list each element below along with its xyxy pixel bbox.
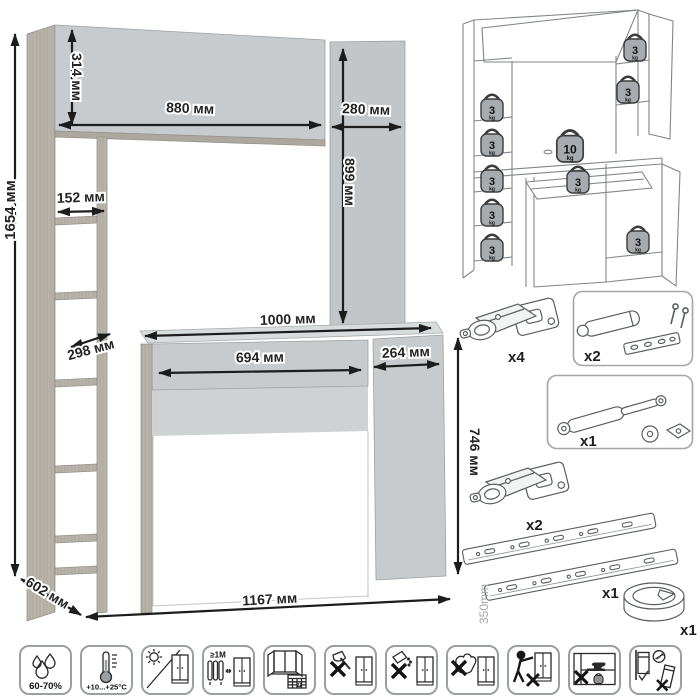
weight-unit: kg xyxy=(489,221,495,227)
dim-shelf-width: 152 мм xyxy=(57,188,105,206)
calendar-day-label: 21 xyxy=(296,682,302,687)
weight-unit: kg xyxy=(566,156,573,162)
radiator-icon xyxy=(208,661,223,685)
care-icon-wall-anchoring xyxy=(629,645,682,695)
weight-unit: kg xyxy=(632,56,638,62)
sun-icon xyxy=(146,649,162,665)
furniture-dimension-sheet: 1654 мм 314 мм 880 мм 280 мм 899 мм 152 … xyxy=(0,0,700,700)
hardware-gaslift-x1: x1 xyxy=(546,374,696,456)
wardrobe-icon xyxy=(172,655,188,683)
care-icon-no-direct-sunlight xyxy=(141,645,194,695)
weight-value: 10 xyxy=(563,143,577,157)
dim-side-column-width: 280 мм xyxy=(342,100,390,118)
x-mark-icon xyxy=(452,661,466,675)
care-icon-ventilation: 21 xyxy=(263,645,316,695)
care-icon-no-wet-cleaning xyxy=(446,645,499,695)
thermometer-icon xyxy=(100,652,117,683)
grommet-qty: x1 xyxy=(680,622,697,639)
wardrobe-icon xyxy=(417,657,433,685)
weight-unit: kg xyxy=(635,248,641,254)
dim-drawer-width: 694 мм xyxy=(236,349,284,366)
x-mark-icon xyxy=(331,662,345,676)
care-icon-humidity: 60-70% xyxy=(19,645,72,695)
dim-side-column-height: 899 мм xyxy=(342,158,358,206)
dim-desktop-width: 1000 мм xyxy=(260,310,316,328)
cable-grommet-icon xyxy=(624,583,684,621)
care-icon-row: 60-70% +10...+25°С xyxy=(0,645,700,695)
care-icon-no-dragging xyxy=(507,645,560,695)
hinge-qty: x4 xyxy=(508,349,525,366)
anchored-cabinet-icon xyxy=(636,650,649,680)
care-icon-no-heavy-load xyxy=(568,645,621,695)
wardrobe-icon xyxy=(234,658,250,686)
slide-length-label: 350mm xyxy=(477,584,491,624)
care-icon-heat-distance: ≥1М xyxy=(202,645,255,695)
weight-unit: kg xyxy=(575,188,581,194)
care-icon-no-sharp-tools xyxy=(324,645,377,695)
double-arrow-icon xyxy=(226,669,231,673)
weight-unit: kg xyxy=(625,98,631,104)
distance-label: ≥1М xyxy=(210,651,226,660)
x-mark-icon xyxy=(392,664,406,678)
load-weights: 3kg 3kg 3kg 3kg 3kg 3kg 3kg 10kg 3kg 3kg xyxy=(481,35,649,262)
screw-detail-icon xyxy=(653,651,665,663)
weight-unit: kg xyxy=(489,116,495,122)
hardware-damper-x2: x2 xyxy=(572,290,696,370)
calendar-icon: 21 xyxy=(288,675,306,688)
dim-hutch-width: 880 мм xyxy=(166,99,214,117)
open-window-icon xyxy=(268,651,302,676)
main-dimension-drawing: 1654 мм 314 мм 880 мм 280 мм 899 мм 152 … xyxy=(0,0,480,660)
care-icon-no-abrasives xyxy=(385,645,438,695)
weight-unit: kg xyxy=(489,151,495,157)
hardware-grommet-x1: x1 xyxy=(612,575,700,641)
dim-door-width: 264 мм xyxy=(382,343,430,361)
dim-hutch-height: 314 мм xyxy=(69,53,85,101)
weight-unit: kg xyxy=(489,256,495,262)
dim-total-height: 1654 мм xyxy=(2,180,19,240)
damper-qty: x2 xyxy=(584,348,601,365)
wardrobe-icon xyxy=(478,657,494,685)
powder-box-icon xyxy=(393,652,411,666)
weight-unit: kg xyxy=(489,187,495,193)
water-drops-icon xyxy=(33,654,55,678)
hardware-hinge-x4: x4 xyxy=(460,290,575,368)
wardrobe-icon xyxy=(356,657,372,685)
hinge-icon xyxy=(459,297,560,344)
dim-total-width: 1167 мм xyxy=(242,590,298,609)
temperature-label: +10...+25°С xyxy=(86,683,127,692)
care-icon-temperature: +10...+25°С xyxy=(80,645,133,695)
load-capacity-drawing: 3kg 3kg 3kg 3kg 3kg 3kg 3kg 10kg 3kg 3kg xyxy=(430,4,698,296)
humidity-label: 60-70% xyxy=(29,681,62,692)
kettlebell-icon xyxy=(594,674,603,684)
